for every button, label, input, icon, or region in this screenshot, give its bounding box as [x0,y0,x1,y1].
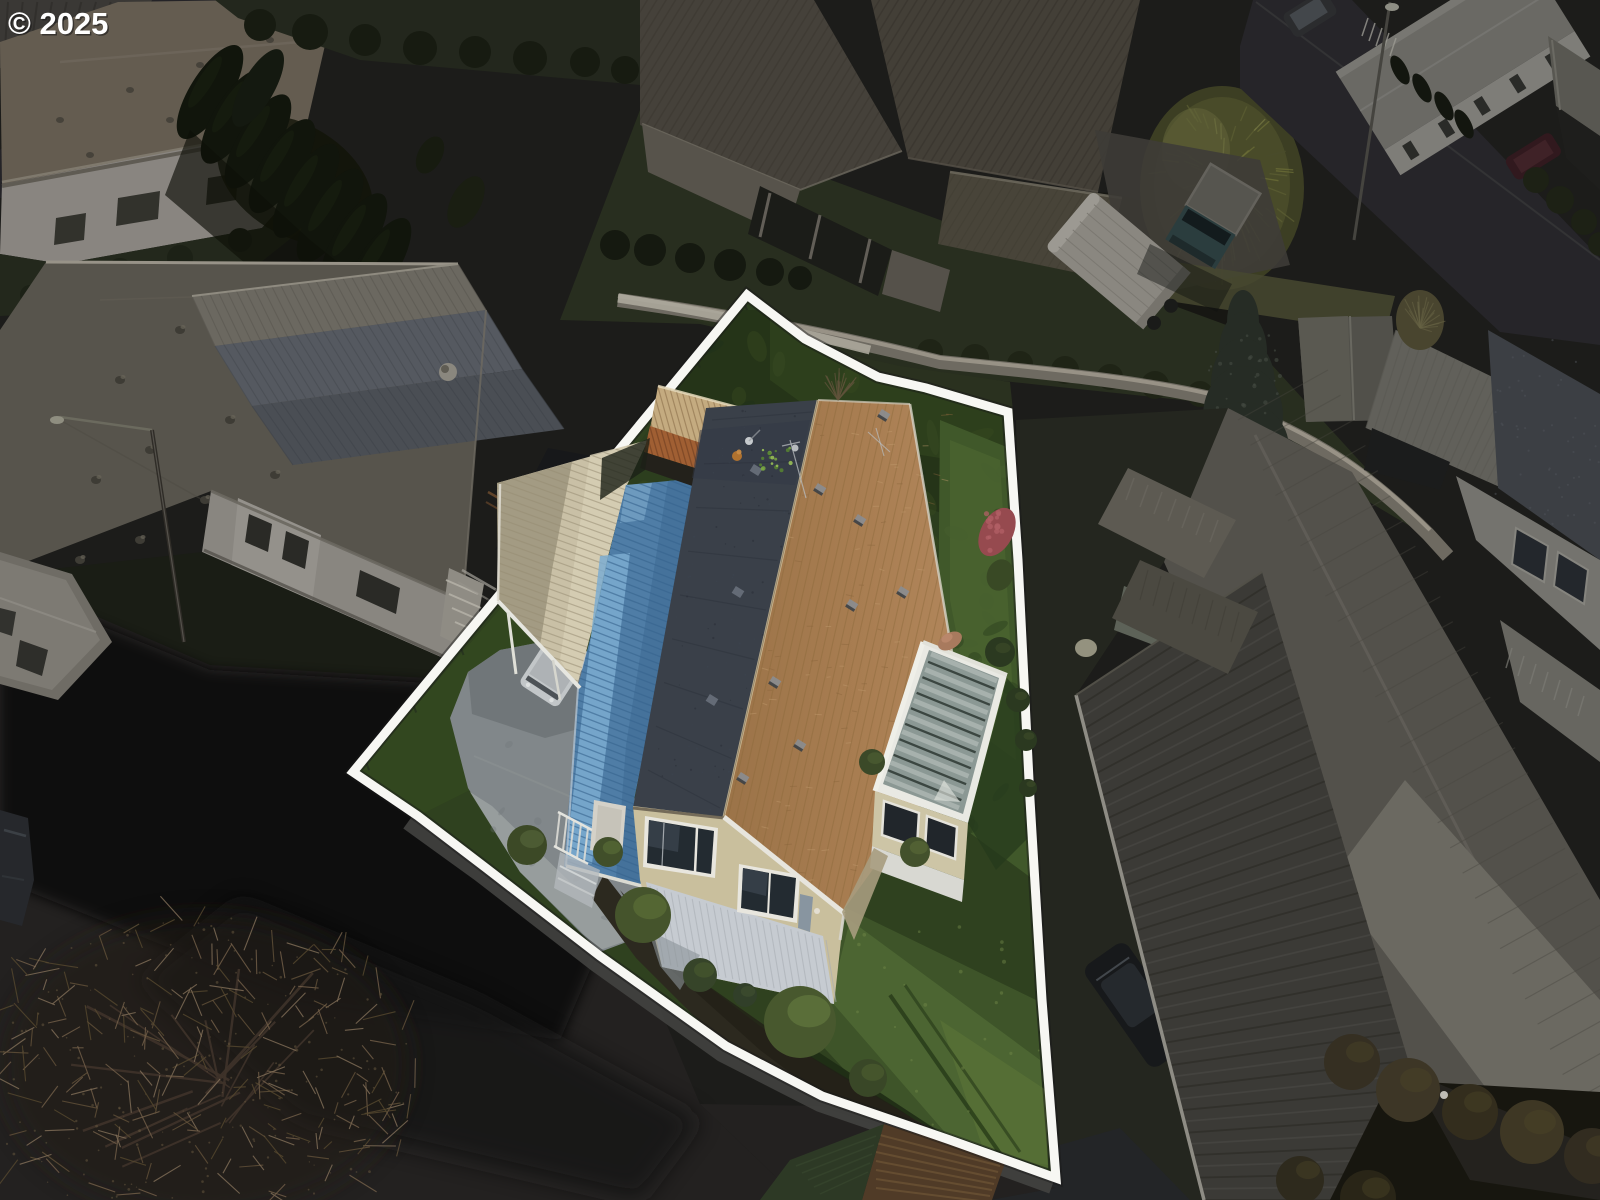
svg-text:© 2025: © 2025 [8,6,108,41]
